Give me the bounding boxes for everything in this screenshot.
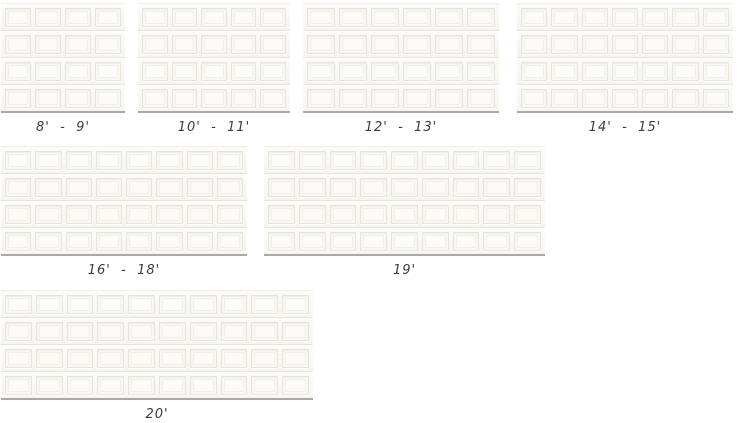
door-section xyxy=(303,31,499,58)
door-panel xyxy=(435,35,463,54)
door-panel xyxy=(360,178,387,197)
door-panel xyxy=(299,151,326,170)
door-panel xyxy=(642,89,668,108)
door-panel xyxy=(159,295,186,314)
door-panel xyxy=(187,178,213,197)
door-panel xyxy=(467,8,495,27)
door-panel xyxy=(36,349,63,368)
door-panel xyxy=(5,178,31,197)
door-panel xyxy=(403,89,431,108)
door-panel xyxy=(36,322,63,341)
door-panel xyxy=(521,35,547,54)
door-panel xyxy=(391,151,418,170)
door-section xyxy=(1,372,313,398)
door-panel xyxy=(95,62,121,81)
door-panel xyxy=(67,295,94,314)
door-panel xyxy=(391,178,418,197)
door-panel xyxy=(403,8,431,27)
door-section xyxy=(1,201,247,228)
door-panel xyxy=(190,295,217,314)
door-panel xyxy=(260,8,286,27)
door-panel xyxy=(96,151,122,170)
door-panel xyxy=(65,62,91,81)
door-size-label-20: 20' xyxy=(1,407,313,422)
door-panel xyxy=(360,151,387,170)
door-panel xyxy=(453,205,480,224)
door-panel xyxy=(251,295,278,314)
door-panel xyxy=(5,151,31,170)
door-panel xyxy=(612,89,638,108)
door-panel xyxy=(142,89,168,108)
door-panel xyxy=(703,89,729,108)
door-section xyxy=(1,58,125,85)
door-panel xyxy=(126,232,152,251)
door-panel xyxy=(231,89,257,108)
door-panel xyxy=(371,89,399,108)
door-panel xyxy=(299,232,326,251)
door-panel xyxy=(551,35,577,54)
door-panel xyxy=(435,62,463,81)
door-panel xyxy=(65,35,91,54)
door-panel xyxy=(251,322,278,341)
door-panel xyxy=(422,205,449,224)
door-panel xyxy=(126,178,152,197)
door-panel xyxy=(36,295,63,314)
door-panel xyxy=(422,232,449,251)
door-panel xyxy=(128,322,155,341)
door-panel xyxy=(128,295,155,314)
door-panel xyxy=(268,232,295,251)
door-size-label-10-11: 10' - 11' xyxy=(138,120,290,135)
door-panel xyxy=(96,232,122,251)
door-panel xyxy=(35,35,61,54)
door-section xyxy=(138,58,290,85)
door-panel xyxy=(95,8,121,27)
door-panel xyxy=(96,178,122,197)
door-panel xyxy=(260,35,286,54)
door-panel xyxy=(282,349,309,368)
door-section xyxy=(138,4,290,31)
door-panel xyxy=(307,89,335,108)
door-panel xyxy=(5,8,31,27)
door-size-label-12-13: 12' - 13' xyxy=(303,120,499,135)
door-panel xyxy=(483,178,510,197)
door-panel xyxy=(551,89,577,108)
door-preview-19[interactable] xyxy=(264,146,545,256)
door-panel xyxy=(551,62,577,81)
door-section xyxy=(138,85,290,111)
door-panel xyxy=(201,62,227,81)
door-panel xyxy=(231,35,257,54)
door-panel xyxy=(172,35,198,54)
door-panel xyxy=(391,232,418,251)
door-panel xyxy=(159,349,186,368)
door-panel xyxy=(156,178,182,197)
door-section xyxy=(517,31,733,58)
door-section xyxy=(303,85,499,111)
door-section xyxy=(1,85,125,111)
door-panel xyxy=(299,205,326,224)
door-size-option-20: 20' xyxy=(1,290,313,422)
door-panel xyxy=(582,35,608,54)
door-panel xyxy=(360,205,387,224)
door-panel xyxy=(282,295,309,314)
door-section xyxy=(1,4,125,31)
door-panel xyxy=(221,295,248,314)
door-section xyxy=(1,147,247,174)
door-panel xyxy=(251,376,278,395)
door-panel xyxy=(330,232,357,251)
door-panel xyxy=(268,205,295,224)
door-panel xyxy=(391,205,418,224)
door-panel xyxy=(467,62,495,81)
garage-door-size-chart: 8' - 9' 10' - 11' 12' - 13' 14' - 15' 16… xyxy=(0,0,737,423)
door-size-label-8-9: 8' - 9' xyxy=(1,120,125,135)
door-panel xyxy=(307,8,335,27)
door-size-option-16-18: 16' - 18' xyxy=(1,146,247,278)
door-panel xyxy=(5,62,31,81)
door-size-label-19: 19' xyxy=(264,263,545,278)
door-panel xyxy=(65,8,91,27)
door-preview-12-13[interactable] xyxy=(303,3,499,113)
door-preview-8-9[interactable] xyxy=(1,3,125,113)
door-panel xyxy=(260,62,286,81)
door-panel xyxy=(217,151,243,170)
door-panel xyxy=(403,62,431,81)
door-panel xyxy=(35,151,61,170)
door-panel xyxy=(453,178,480,197)
door-panel xyxy=(703,62,729,81)
door-size-option-8-9: 8' - 9' xyxy=(1,3,125,135)
door-panel xyxy=(97,322,124,341)
door-panel xyxy=(190,376,217,395)
door-panel xyxy=(128,376,155,395)
door-panel xyxy=(35,178,61,197)
door-panel xyxy=(126,205,152,224)
door-panel xyxy=(672,62,698,81)
door-panel xyxy=(142,62,168,81)
door-panel xyxy=(95,35,121,54)
door-preview-14-15[interactable] xyxy=(517,3,733,113)
door-section xyxy=(303,58,499,85)
door-panel xyxy=(5,322,32,341)
door-panel xyxy=(371,62,399,81)
door-panel xyxy=(672,35,698,54)
door-panel xyxy=(330,151,357,170)
door-panel xyxy=(339,8,367,27)
door-panel xyxy=(221,349,248,368)
door-section xyxy=(1,318,313,345)
door-panel xyxy=(521,8,547,27)
door-panel xyxy=(97,295,124,314)
door-panel xyxy=(221,376,248,395)
door-section xyxy=(517,85,733,111)
door-section xyxy=(1,291,313,318)
door-panel xyxy=(66,178,92,197)
door-panel xyxy=(172,89,198,108)
door-section xyxy=(1,31,125,58)
door-panel xyxy=(612,62,638,81)
door-panel xyxy=(97,376,124,395)
door-panel xyxy=(339,89,367,108)
door-panel xyxy=(5,205,31,224)
door-panel xyxy=(190,349,217,368)
door-panel xyxy=(268,151,295,170)
door-panel xyxy=(187,232,213,251)
door-section xyxy=(303,4,499,31)
door-section xyxy=(264,228,545,254)
door-panel xyxy=(467,89,495,108)
door-panel xyxy=(142,8,168,27)
door-panel xyxy=(282,376,309,395)
door-panel xyxy=(172,8,198,27)
door-panel xyxy=(483,151,510,170)
door-section xyxy=(138,31,290,58)
door-panel xyxy=(36,376,63,395)
door-panel xyxy=(35,8,61,27)
door-panel xyxy=(96,205,122,224)
door-panel xyxy=(65,89,91,108)
door-panel xyxy=(282,322,309,341)
door-panel xyxy=(35,232,61,251)
door-panel xyxy=(201,8,227,27)
door-panel xyxy=(307,62,335,81)
door-section xyxy=(264,174,545,201)
door-panel xyxy=(467,35,495,54)
door-panel xyxy=(95,89,121,108)
door-size-label-16-18: 16' - 18' xyxy=(1,263,247,278)
door-section xyxy=(517,4,733,31)
door-panel xyxy=(582,89,608,108)
door-section xyxy=(1,228,247,254)
door-preview-20[interactable] xyxy=(1,290,313,400)
door-panel xyxy=(514,232,541,251)
door-panel xyxy=(5,89,31,108)
door-panel xyxy=(360,232,387,251)
door-panel xyxy=(66,151,92,170)
door-panel xyxy=(35,205,61,224)
door-panel xyxy=(268,178,295,197)
door-panel xyxy=(514,178,541,197)
door-panel xyxy=(339,62,367,81)
door-panel xyxy=(187,151,213,170)
door-panel xyxy=(231,8,257,27)
door-panel xyxy=(217,178,243,197)
door-panel xyxy=(521,89,547,108)
door-panel xyxy=(260,89,286,108)
door-panel xyxy=(521,62,547,81)
door-panel xyxy=(5,349,32,368)
door-panel xyxy=(231,62,257,81)
door-panel xyxy=(371,35,399,54)
door-panel xyxy=(221,322,248,341)
door-panel xyxy=(642,62,668,81)
door-panel xyxy=(551,8,577,27)
door-panel xyxy=(642,35,668,54)
door-panel xyxy=(453,232,480,251)
door-panel xyxy=(190,322,217,341)
door-panel xyxy=(201,35,227,54)
door-panel xyxy=(126,151,152,170)
door-panel xyxy=(483,232,510,251)
door-panel xyxy=(612,35,638,54)
door-panel xyxy=(142,35,168,54)
door-preview-10-11[interactable] xyxy=(138,3,290,113)
door-panel xyxy=(339,35,367,54)
door-panel xyxy=(5,295,32,314)
door-panel xyxy=(514,151,541,170)
door-panel xyxy=(453,151,480,170)
door-panel xyxy=(672,8,698,27)
door-panel xyxy=(159,376,186,395)
door-panel xyxy=(422,151,449,170)
door-size-option-19: 19' xyxy=(264,146,545,278)
door-panel xyxy=(35,89,61,108)
door-panel xyxy=(201,89,227,108)
door-panel xyxy=(703,35,729,54)
door-panel xyxy=(156,232,182,251)
door-section xyxy=(517,58,733,85)
door-section xyxy=(1,174,247,201)
door-panel xyxy=(672,89,698,108)
door-size-label-14-15: 14' - 15' xyxy=(517,120,733,135)
door-panel xyxy=(156,205,182,224)
door-size-option-14-15: 14' - 15' xyxy=(517,3,733,135)
door-size-option-12-13: 12' - 13' xyxy=(303,3,499,135)
door-panel xyxy=(330,178,357,197)
door-panel xyxy=(299,178,326,197)
door-size-option-10-11: 10' - 11' xyxy=(138,3,290,135)
door-panel xyxy=(97,349,124,368)
door-panel xyxy=(612,8,638,27)
door-panel xyxy=(422,178,449,197)
door-panel xyxy=(5,35,31,54)
door-panel xyxy=(217,205,243,224)
door-panel xyxy=(403,35,431,54)
door-panel xyxy=(187,205,213,224)
door-panel xyxy=(159,322,186,341)
door-panel xyxy=(642,8,668,27)
door-panel xyxy=(307,35,335,54)
door-panel xyxy=(514,205,541,224)
door-panel xyxy=(5,376,32,395)
door-panel xyxy=(35,62,61,81)
door-panel xyxy=(217,232,243,251)
door-section xyxy=(264,201,545,228)
door-panel xyxy=(435,89,463,108)
door-panel xyxy=(172,62,198,81)
door-panel xyxy=(67,349,94,368)
door-panel xyxy=(703,8,729,27)
door-panel xyxy=(435,8,463,27)
door-panel xyxy=(5,232,31,251)
door-panel xyxy=(582,8,608,27)
door-panel xyxy=(156,151,182,170)
door-panel xyxy=(330,205,357,224)
door-panel xyxy=(371,8,399,27)
door-section xyxy=(1,345,313,372)
door-panel xyxy=(483,205,510,224)
door-preview-16-18[interactable] xyxy=(1,146,247,256)
door-panel xyxy=(67,376,94,395)
door-panel xyxy=(66,232,92,251)
door-panel xyxy=(251,349,278,368)
door-panel xyxy=(582,62,608,81)
door-section xyxy=(264,147,545,174)
door-panel xyxy=(66,205,92,224)
door-panel xyxy=(128,349,155,368)
door-panel xyxy=(67,322,94,341)
